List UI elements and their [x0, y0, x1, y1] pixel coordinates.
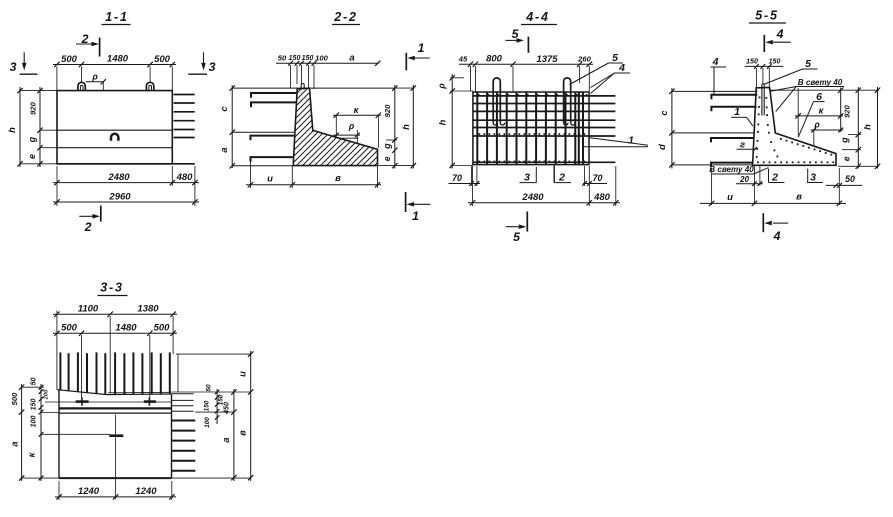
svg-text:1: 1: [628, 135, 634, 147]
svg-text:150: 150: [31, 399, 38, 411]
svg-text:5: 5: [513, 230, 520, 244]
svg-text:1480: 1480: [115, 323, 137, 334]
svg-text:h: h: [863, 124, 873, 130]
svg-text:a: a: [10, 441, 20, 446]
svg-text:1375: 1375: [536, 54, 558, 65]
svg-text:500: 500: [61, 323, 78, 334]
svg-text:3-3: 3-3: [100, 281, 123, 295]
svg-text:480: 480: [593, 192, 611, 203]
svg-text:920: 920: [383, 104, 392, 117]
svg-text:500: 500: [154, 323, 171, 334]
svg-text:150: 150: [746, 59, 758, 66]
svg-text:500: 500: [10, 392, 19, 405]
svg-text:4: 4: [712, 56, 719, 68]
svg-text:100: 100: [204, 417, 211, 428]
svg-text:1240: 1240: [135, 486, 157, 497]
svg-text:50: 50: [31, 378, 38, 386]
svg-text:150: 150: [289, 55, 301, 62]
svg-text:В свету 40: В свету 40: [709, 165, 754, 174]
svg-text:5: 5: [612, 52, 618, 64]
svg-text:100: 100: [315, 54, 328, 63]
svg-text:920: 920: [29, 101, 38, 114]
svg-text:50: 50: [845, 174, 855, 184]
svg-text:500: 500: [154, 54, 171, 65]
svg-text:4: 4: [776, 27, 784, 41]
svg-text:1240: 1240: [78, 486, 100, 497]
svg-text:в: в: [238, 430, 248, 436]
svg-text:ρ: ρ: [348, 121, 355, 131]
svg-text:в: в: [796, 192, 802, 203]
svg-text:1: 1: [418, 41, 425, 55]
svg-text:d: d: [657, 144, 667, 150]
svg-text:a: a: [219, 147, 229, 152]
svg-text:70: 70: [593, 173, 603, 183]
svg-text:2: 2: [84, 220, 92, 234]
svg-text:ρ: ρ: [437, 83, 447, 90]
svg-text:1: 1: [734, 106, 740, 118]
svg-text:800: 800: [486, 54, 503, 65]
svg-text:1: 1: [412, 209, 419, 223]
svg-text:2480: 2480: [107, 172, 130, 183]
svg-text:h: h: [401, 124, 411, 130]
svg-text:45: 45: [458, 55, 468, 64]
svg-text:2480: 2480: [521, 192, 544, 203]
svg-text:1480: 1480: [107, 54, 129, 65]
svg-text:70: 70: [452, 173, 462, 183]
svg-text:50: 50: [278, 54, 287, 63]
svg-text:5-5: 5-5: [755, 9, 778, 23]
svg-text:ρ: ρ: [813, 120, 820, 130]
svg-text:и: и: [267, 174, 273, 185]
svg-text:500: 500: [61, 54, 78, 65]
svg-text:и: и: [238, 371, 248, 377]
svg-text:e: e: [382, 156, 392, 161]
svg-text:1100: 1100: [78, 304, 99, 315]
svg-text:920: 920: [842, 104, 851, 117]
svg-text:150: 150: [204, 400, 211, 411]
svg-text:e: e: [27, 154, 37, 159]
svg-text:3: 3: [810, 171, 816, 183]
svg-text:150: 150: [769, 59, 781, 66]
svg-text:h: h: [438, 119, 448, 125]
svg-text:g: g: [840, 137, 850, 144]
svg-text:g: g: [382, 143, 392, 150]
svg-text:1-1: 1-1: [105, 10, 128, 24]
svg-text:3: 3: [10, 60, 17, 74]
svg-text:150: 150: [302, 55, 314, 62]
svg-text:450: 450: [224, 402, 231, 415]
svg-text:4-4: 4-4: [525, 10, 549, 24]
svg-text:2: 2: [771, 171, 778, 183]
svg-text:a: a: [349, 53, 354, 64]
svg-text:В свету 40: В свету 40: [798, 78, 843, 87]
svg-text:a: a: [221, 437, 231, 442]
svg-text:2-2: 2-2: [333, 10, 357, 24]
svg-text:c: c: [219, 106, 229, 112]
svg-text:2960: 2960: [108, 192, 131, 203]
svg-text:в: в: [335, 173, 341, 184]
svg-text:g: g: [27, 136, 37, 143]
svg-text:3: 3: [524, 172, 530, 184]
svg-text:4: 4: [773, 229, 781, 243]
svg-text:50: 50: [206, 384, 213, 392]
svg-text:и: и: [727, 192, 733, 203]
svg-text:5: 5: [805, 58, 811, 70]
svg-text:ρ: ρ: [91, 72, 98, 82]
svg-text:4: 4: [618, 62, 625, 74]
svg-text:260: 260: [577, 55, 591, 64]
svg-text:20: 20: [739, 175, 750, 184]
svg-text:h: h: [7, 127, 17, 133]
svg-text:200: 200: [44, 389, 50, 400]
svg-text:e: e: [841, 156, 851, 161]
svg-text:3: 3: [209, 60, 216, 74]
svg-text:2: 2: [558, 172, 565, 184]
svg-text:c: c: [659, 110, 669, 116]
svg-text:480: 480: [176, 172, 194, 183]
svg-text:100: 100: [31, 416, 38, 428]
svg-text:1380: 1380: [137, 304, 159, 315]
